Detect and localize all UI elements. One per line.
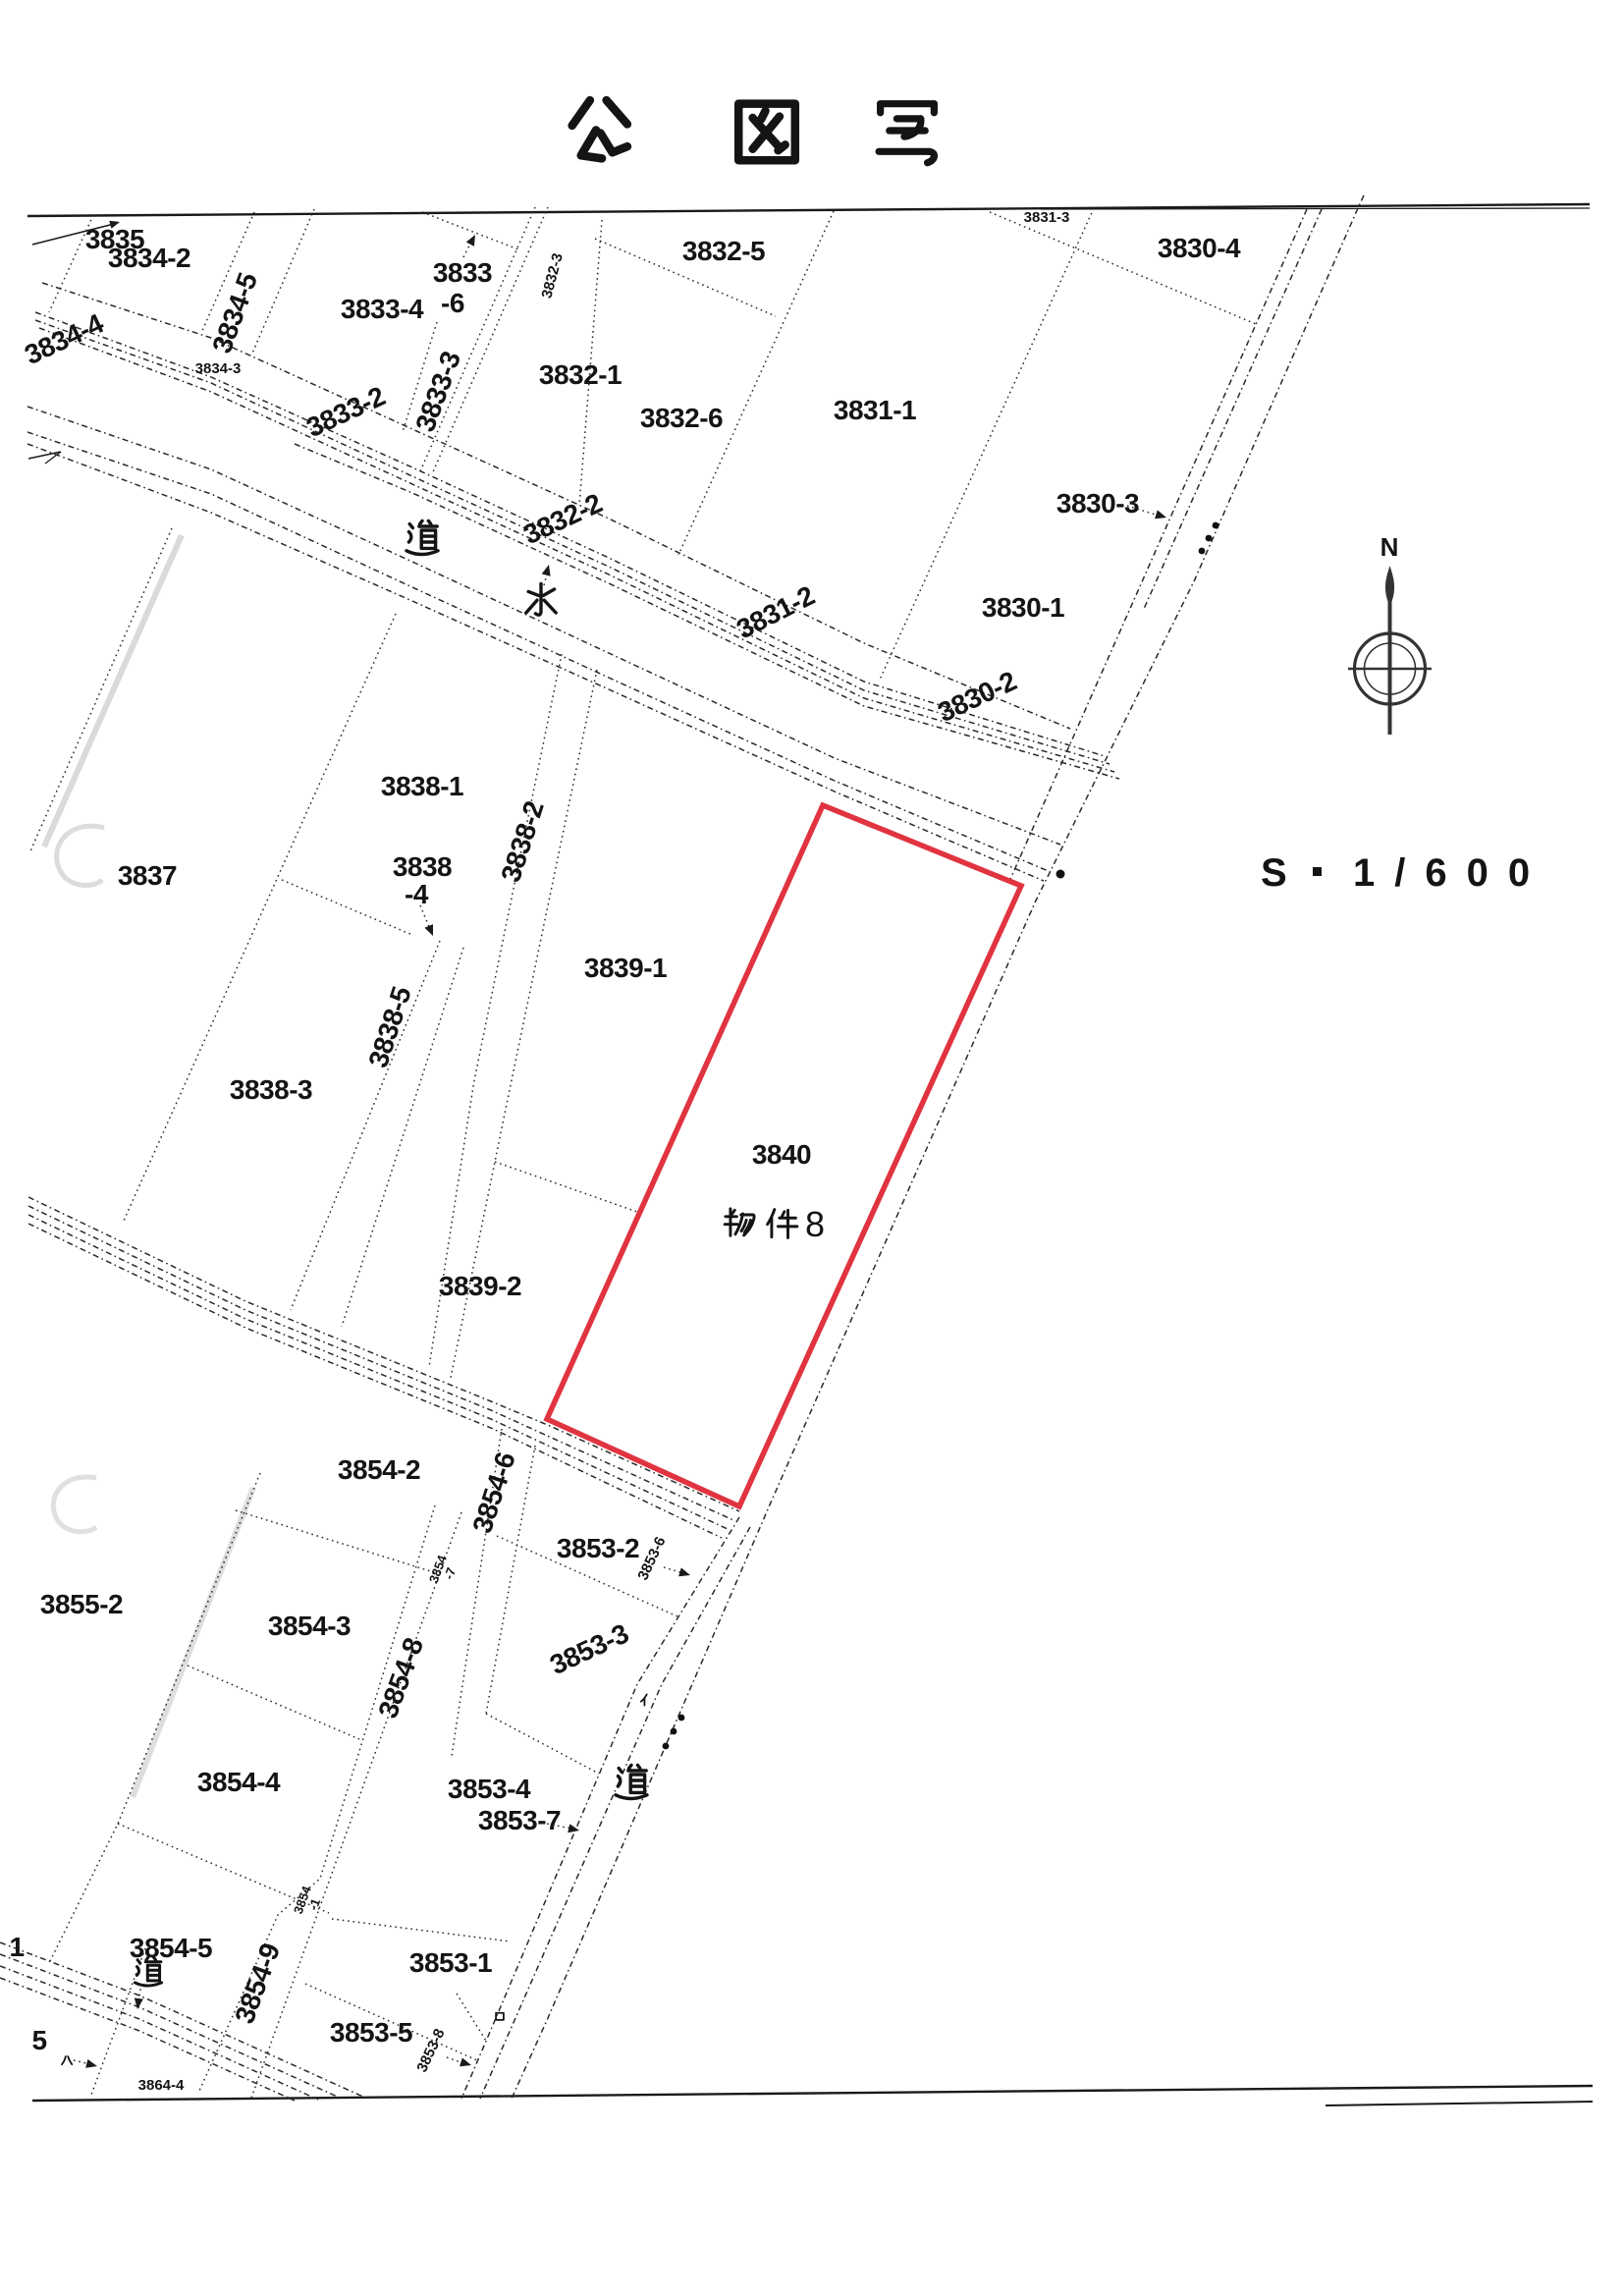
svg-text:-6: -6: [441, 288, 464, 318]
svg-text:3834-3: 3834-3: [195, 360, 242, 377]
svg-text:3853-2: 3853-2: [557, 1533, 639, 1563]
svg-text:3832-6: 3832-6: [640, 403, 723, 433]
svg-text:3832-1: 3832-1: [539, 359, 622, 390]
svg-text:3854-5: 3854-5: [130, 1933, 212, 1963]
svg-text:3833: 3833: [433, 257, 492, 288]
svg-text:8: 8: [805, 1204, 825, 1244]
svg-text:3830-4: 3830-4: [1158, 233, 1241, 263]
svg-text:3840: 3840: [752, 1139, 811, 1170]
svg-text:3831-1: 3831-1: [834, 395, 916, 425]
svg-text:3854-2: 3854-2: [338, 1454, 420, 1485]
svg-text:1: 1: [9, 1932, 24, 1962]
svg-text:3830-1: 3830-1: [982, 592, 1064, 623]
svg-text:3853-1: 3853-1: [409, 1947, 492, 1978]
svg-text:3833-4: 3833-4: [341, 294, 424, 324]
svg-text:5: 5: [31, 2025, 46, 2055]
svg-text:3834-2: 3834-2: [108, 243, 190, 273]
svg-text:S: S: [1261, 851, 1287, 895]
svg-text:3837: 3837: [118, 860, 177, 891]
svg-text:3855-2: 3855-2: [40, 1589, 123, 1619]
svg-text:3838-3: 3838-3: [230, 1074, 312, 1105]
svg-text:3832-5: 3832-5: [682, 236, 765, 266]
svg-text:3864-4: 3864-4: [138, 2077, 185, 2094]
svg-text:3838: 3838: [393, 851, 452, 882]
svg-text:-4: -4: [405, 879, 429, 909]
svg-text:1/600: 1/600: [1353, 851, 1549, 895]
svg-text:3854-4: 3854-4: [197, 1767, 281, 1797]
svg-text:3854-3: 3854-3: [268, 1611, 351, 1641]
svg-text:3831-3: 3831-3: [1024, 209, 1070, 226]
svg-text:N: N: [1380, 532, 1399, 562]
svg-text:3830-3: 3830-3: [1056, 488, 1139, 519]
svg-text:3839-2: 3839-2: [439, 1271, 521, 1301]
svg-text:3853-5: 3853-5: [330, 2017, 412, 2048]
svg-text:3839-1: 3839-1: [584, 953, 667, 983]
svg-text:3838-1: 3838-1: [381, 771, 463, 801]
svg-text:3853-7: 3853-7: [478, 1805, 561, 1835]
svg-text:3853-4: 3853-4: [448, 1774, 531, 1804]
